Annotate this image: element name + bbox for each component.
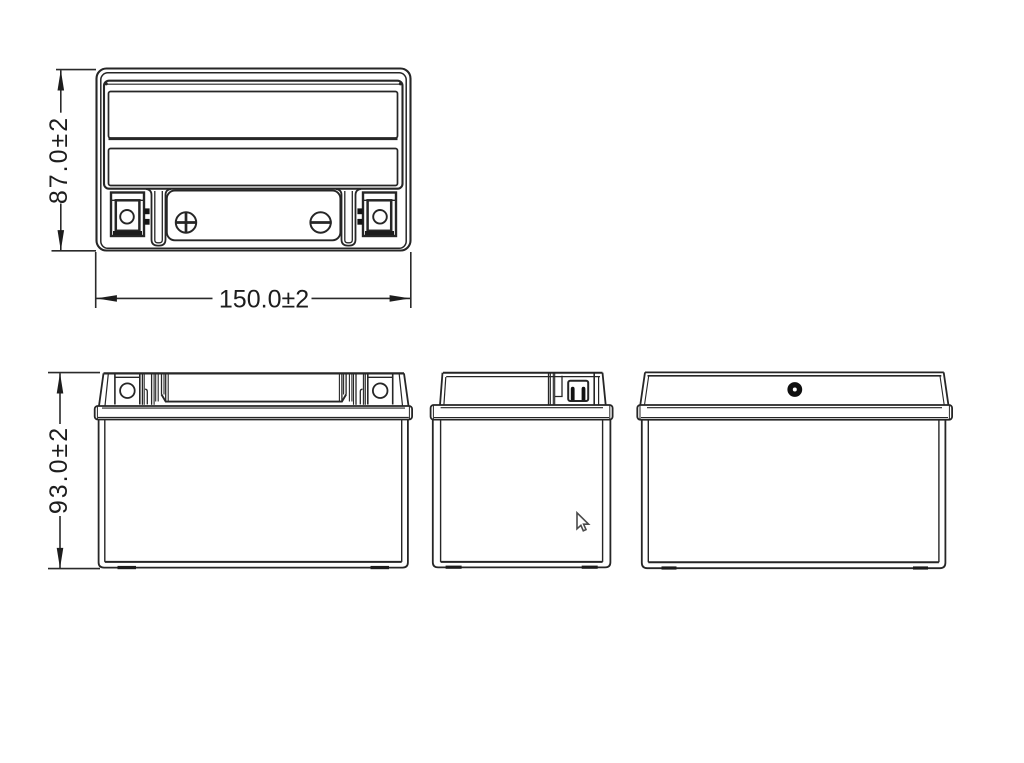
svg-text:150.0±2: 150.0±2 [219,286,309,314]
svg-text:93.0±2: 93.0±2 [45,426,73,514]
svg-text:87.0±2: 87.0±2 [45,116,73,204]
